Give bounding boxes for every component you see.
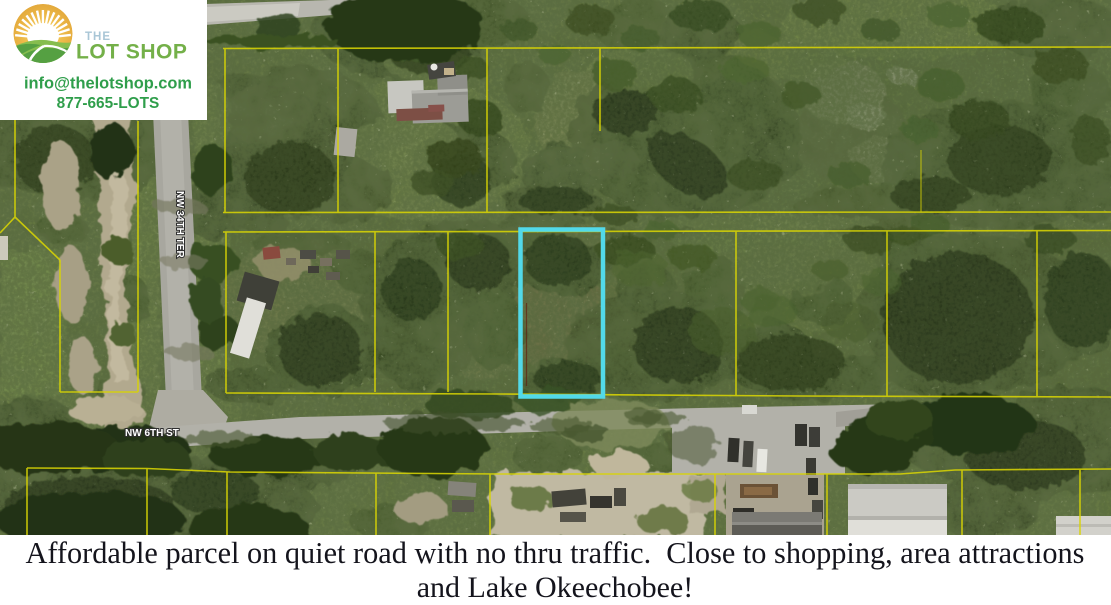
svg-text:Affordable parcel on quiet roa: Affordable parcel on quiet road with no … — [26, 536, 1085, 570]
svg-text:info@thelotshop.com: info@thelotshop.com — [24, 75, 192, 93]
svg-text:and Lake Okeechobee!: and Lake Okeechobee! — [417, 571, 694, 604]
svg-text:LOT SHOP: LOT SHOP — [76, 41, 187, 64]
svg-text:NW 34TH TER: NW 34TH TER — [174, 191, 185, 258]
svg-text:NW 6TH ST: NW 6TH ST — [125, 428, 179, 439]
svg-text:877-665-LOTS: 877-665-LOTS — [57, 95, 160, 112]
